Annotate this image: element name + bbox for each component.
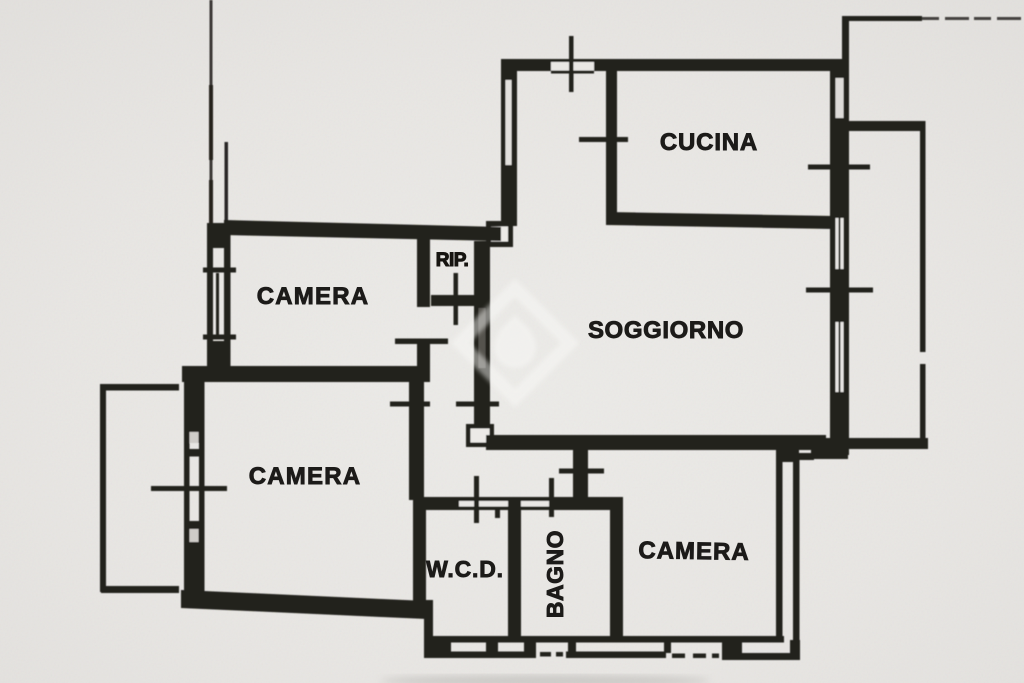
svg-text:CAMERA: CAMERA (249, 463, 362, 490)
svg-text:BAGNO: BAGNO (542, 530, 568, 618)
svg-text:CUCINA: CUCINA (660, 129, 758, 156)
svg-text:CAMERA: CAMERA (638, 537, 750, 566)
svg-text:SOGGIORNO: SOGGIORNO (588, 317, 744, 344)
svg-text:CAMERA: CAMERA (257, 283, 370, 310)
svg-text:RIP.: RIP. (436, 250, 469, 271)
svg-text:W.C.D.: W.C.D. (426, 556, 504, 582)
